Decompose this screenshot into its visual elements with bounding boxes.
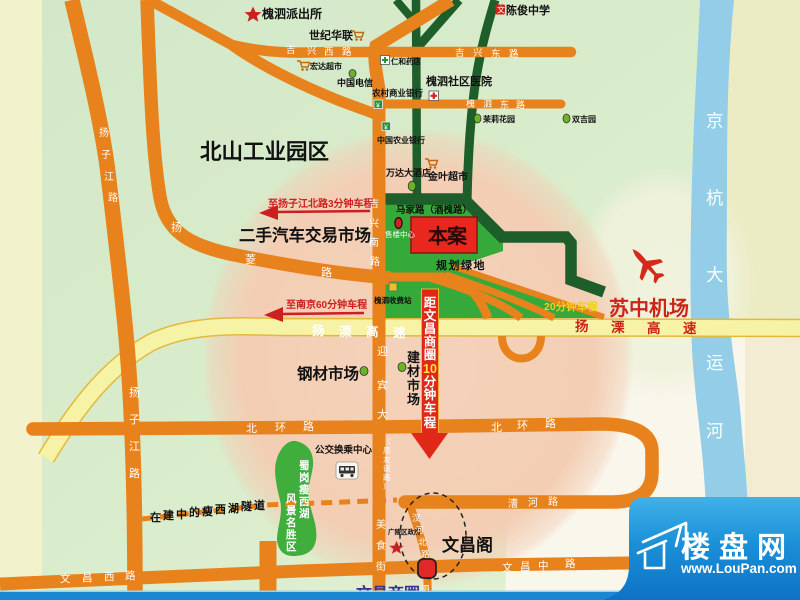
- svg-text:槐泗收费站: 槐泗收费站: [373, 295, 412, 305]
- svg-text:马家路（酒槐路）: 马家路（酒槐路）: [396, 204, 472, 216]
- svg-text:兴: 兴: [473, 48, 483, 59]
- svg-text:¥: ¥: [384, 125, 388, 132]
- svg-text:中: 中: [176, 507, 187, 521]
- svg-text:兴: 兴: [307, 46, 317, 57]
- svg-text:槐泗社区医院: 槐泗社区医院: [425, 74, 492, 88]
- svg-text:槐泗派出所: 槐泗派出所: [261, 6, 322, 21]
- svg-text:¥: ¥: [376, 103, 380, 110]
- svg-text:大: 大: [377, 407, 388, 421]
- svg-text:西: 西: [299, 496, 310, 508]
- svg-text:路: 路: [565, 557, 576, 570]
- svg-text:风: 风: [286, 493, 297, 505]
- svg-text:路: 路: [509, 48, 519, 60]
- svg-text:河: 河: [528, 497, 538, 509]
- svg-text:北山工业园区: 北山工业园区: [200, 140, 329, 164]
- svg-text:至扬子江北路3分钟车程: 至扬子江北路3分钟车程: [268, 197, 374, 210]
- svg-text:速: 速: [393, 325, 406, 340]
- svg-text:金叶超市: 金叶超市: [427, 170, 468, 183]
- svg-text:路: 路: [545, 417, 556, 430]
- svg-text:文昌阁: 文昌阁: [442, 535, 493, 555]
- svg-text:街: 街: [376, 560, 386, 573]
- svg-text:公交换乘中心: 公交换乘中心: [315, 444, 373, 456]
- svg-text:路: 路: [108, 191, 118, 204]
- svg-text:京: 京: [706, 111, 724, 131]
- svg-text:扬: 扬: [129, 385, 140, 399]
- svg-text:溧: 溧: [339, 325, 352, 339]
- svg-text:子: 子: [101, 149, 111, 161]
- svg-text:隧: 隧: [241, 499, 252, 513]
- svg-text:速: 速: [683, 320, 697, 336]
- svg-text:昌: 昌: [424, 321, 437, 336]
- svg-text:区: 区: [286, 541, 297, 553]
- svg-text:宏达超市: 宏达超市: [310, 61, 342, 71]
- svg-text:www.LouPan.com: www.LouPan.com: [680, 561, 797, 576]
- svg-text:文: 文: [424, 308, 437, 323]
- svg-text:友: 友: [383, 454, 391, 464]
- svg-text:路: 路: [370, 255, 380, 268]
- svg-text:岗: 岗: [299, 471, 310, 484]
- svg-text:泗: 泗: [483, 99, 492, 109]
- svg-text:扬: 扬: [171, 220, 182, 234]
- svg-text:10: 10: [423, 362, 437, 376]
- svg-text:吉: 吉: [455, 48, 465, 59]
- svg-text:的: 的: [189, 505, 200, 519]
- svg-text:文: 文: [502, 561, 513, 574]
- svg-text:分: 分: [424, 374, 437, 389]
- svg-text:环: 环: [275, 422, 286, 434]
- svg-text:道: 道: [254, 498, 265, 512]
- svg-text:钢材市场: 钢材市场: [297, 364, 359, 383]
- svg-text:材: 材: [407, 364, 420, 379]
- svg-text:路: 路: [303, 420, 314, 433]
- svg-text:槐: 槐: [466, 98, 475, 109]
- svg-text:商: 商: [424, 334, 437, 349]
- svg-text:车: 车: [424, 401, 437, 416]
- svg-text:建: 建: [407, 350, 420, 365]
- svg-text:二手汽车交易市场: 二手汽车交易市场: [239, 225, 371, 245]
- svg-text:路: 路: [125, 569, 136, 582]
- svg-text:谊: 谊: [383, 463, 391, 473]
- svg-text:（: （: [383, 437, 391, 446]
- svg-text:路: 路: [129, 467, 140, 480]
- svg-text:迎: 迎: [377, 345, 388, 358]
- svg-text:双吉园: 双吉园: [572, 114, 596, 124]
- svg-text:胜: 胜: [285, 528, 297, 541]
- svg-text:程: 程: [424, 415, 437, 430]
- svg-text:高: 高: [366, 324, 379, 339]
- svg-text:食: 食: [376, 539, 386, 552]
- svg-text:湖: 湖: [299, 507, 310, 520]
- svg-text:东: 东: [491, 48, 501, 60]
- svg-text:在: 在: [150, 510, 161, 524]
- svg-text:汊: 汊: [412, 513, 421, 523]
- svg-text:河: 河: [706, 421, 724, 441]
- svg-text:文: 文: [60, 572, 71, 585]
- svg-text:路: 路: [321, 266, 332, 279]
- svg-text:西: 西: [215, 503, 226, 516]
- svg-text:西: 西: [324, 47, 334, 58]
- svg-text:文: 文: [497, 5, 505, 15]
- svg-text:名: 名: [286, 516, 297, 529]
- svg-text:东: 东: [500, 99, 509, 110]
- svg-text:江: 江: [129, 440, 140, 453]
- svg-text:北: 北: [418, 537, 427, 547]
- svg-text:圈: 圈: [424, 347, 437, 362]
- svg-text:农村商业银行: 农村商业银行: [371, 88, 424, 98]
- svg-text:扬: 扬: [99, 126, 109, 139]
- svg-text:场: 场: [407, 392, 420, 407]
- svg-text:大: 大: [706, 265, 724, 285]
- svg-text:中国电信: 中国电信: [337, 77, 373, 88]
- svg-text:吉: 吉: [369, 198, 379, 210]
- svg-text:西: 西: [104, 571, 115, 583]
- svg-text:南: 南: [369, 236, 379, 249]
- svg-text:路: 路: [548, 495, 558, 508]
- svg-text:陈俊中学: 陈俊中学: [506, 3, 550, 17]
- svg-text:市: 市: [407, 378, 420, 393]
- svg-text:中国农业银行: 中国农业银行: [377, 135, 425, 145]
- svg-text:昌: 昌: [82, 572, 93, 584]
- svg-text:吉: 吉: [286, 45, 296, 56]
- svg-text:瘦: 瘦: [202, 504, 213, 518]
- svg-text:路: 路: [383, 472, 391, 482]
- svg-text:宾: 宾: [377, 378, 388, 392]
- svg-text:楼盘网: 楼盘网: [681, 530, 795, 564]
- svg-text:溧: 溧: [611, 319, 625, 335]
- svg-text:昌: 昌: [520, 561, 531, 573]
- svg-text:世纪华联: 世纪华联: [309, 28, 353, 42]
- svg-text:子: 子: [129, 413, 140, 426]
- svg-text:钟: 钟: [424, 387, 437, 402]
- svg-text:河: 河: [415, 525, 424, 535]
- svg-text:茉莉花园: 茉莉花园: [482, 114, 515, 124]
- svg-text:北: 北: [246, 422, 257, 435]
- svg-text:瘦: 瘦: [299, 483, 310, 496]
- svg-text:20分钟车程: 20分钟车程: [544, 300, 598, 313]
- svg-text:）: ）: [383, 482, 391, 491]
- svg-text:漕: 漕: [508, 497, 518, 510]
- svg-text:湖: 湖: [228, 501, 239, 515]
- svg-text:仁和药店: 仁和药店: [391, 56, 421, 66]
- svg-text:景: 景: [285, 504, 297, 517]
- svg-text:建: 建: [163, 508, 175, 522]
- svg-text:中: 中: [538, 559, 549, 572]
- svg-text:售楼中心: 售楼中心: [385, 229, 415, 239]
- svg-text:菱: 菱: [245, 253, 256, 266]
- svg-text:距: 距: [424, 296, 437, 310]
- svg-text:蜀: 蜀: [299, 460, 310, 472]
- svg-text:路: 路: [342, 46, 352, 58]
- svg-text:扬: 扬: [575, 318, 589, 334]
- svg-text:美: 美: [376, 518, 386, 531]
- svg-text:至南京60分钟车程: 至南京60分钟车程: [286, 298, 367, 311]
- svg-text:扬: 扬: [312, 323, 325, 338]
- svg-text:路: 路: [516, 99, 525, 110]
- svg-text:环: 环: [517, 420, 528, 432]
- svg-text:运: 运: [706, 353, 724, 373]
- svg-text:杭: 杭: [706, 188, 724, 208]
- svg-text:苏中机场: 苏中机场: [609, 296, 689, 320]
- svg-text:兴: 兴: [369, 218, 379, 230]
- svg-text:万达大酒店: 万达大酒店: [385, 167, 431, 178]
- svg-text:路: 路: [421, 549, 430, 559]
- svg-text:北: 北: [491, 421, 502, 434]
- svg-text:原: 原: [383, 446, 391, 455]
- svg-text:江: 江: [104, 171, 114, 183]
- svg-text:规划绿地: 规划绿地: [436, 258, 486, 272]
- svg-text:高: 高: [647, 320, 661, 336]
- svg-text:本案: 本案: [428, 224, 468, 248]
